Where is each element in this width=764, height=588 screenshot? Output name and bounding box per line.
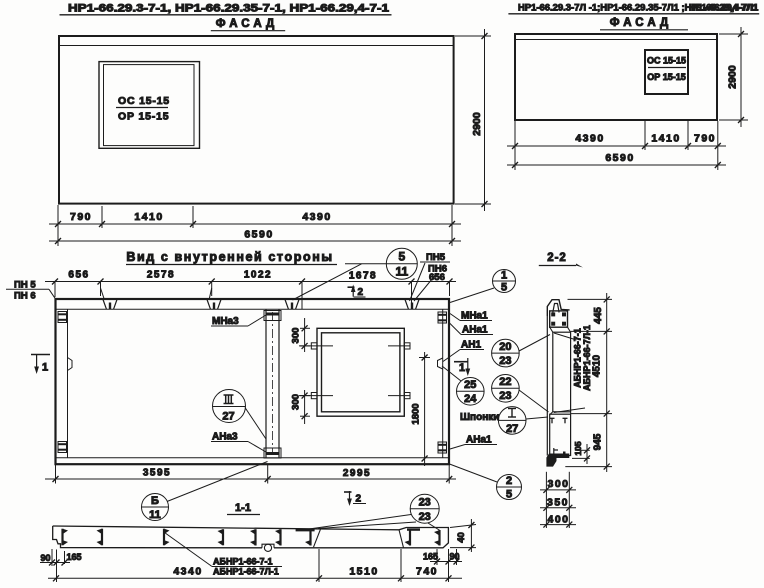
svg-text:2995: 2995 — [343, 468, 371, 479]
svg-text:105: 105 — [573, 441, 583, 455]
svg-text:11: 11 — [149, 509, 161, 521]
svg-text:5: 5 — [506, 489, 512, 501]
svg-text:ОС 15-15: ОС 15-15 — [118, 95, 170, 107]
svg-text:1022: 1022 — [244, 270, 272, 281]
svg-text:АН1: АН1 — [461, 340, 481, 351]
svg-text:4390: 4390 — [302, 211, 331, 223]
svg-text:ФАСАД: ФАСАД — [216, 18, 279, 30]
svg-text:23: 23 — [499, 390, 511, 402]
svg-text:АБНР1-66-7-1: АБНР1-66-7-1 — [213, 557, 273, 567]
svg-text:ФАСАД: ФАСАД — [610, 17, 673, 29]
svg-text:25: 25 — [464, 379, 476, 391]
svg-text:2-2: 2-2 — [547, 252, 567, 264]
svg-text:40: 40 — [456, 532, 467, 543]
svg-text:350: 350 — [547, 497, 569, 509]
svg-text:740: 740 — [416, 566, 438, 578]
svg-text:АБНР1-66-7Л-1: АБНР1-66-7Л-1 — [582, 325, 592, 391]
svg-text:1: 1 — [501, 270, 507, 282]
svg-text:20: 20 — [499, 341, 511, 353]
svg-text:2900: 2900 — [471, 112, 483, 136]
svg-text:165: 165 — [67, 552, 82, 562]
svg-text:АБНР1-66-7-1: АБНР1-66-7-1 — [573, 328, 583, 388]
svg-text:МНа3: МНа3 — [212, 316, 239, 327]
svg-text:1800: 1800 — [411, 403, 422, 424]
svg-text:6590: 6590 — [244, 229, 273, 241]
svg-text:ПН5: ПН5 — [426, 252, 446, 263]
svg-text:300: 300 — [291, 394, 302, 410]
svg-text:АНа1: АНа1 — [462, 325, 488, 336]
svg-text:2: 2 — [506, 475, 512, 487]
svg-text:1410: 1410 — [651, 133, 680, 145]
svg-text:ПН 6: ПН 6 — [14, 291, 36, 302]
svg-text:300: 300 — [291, 328, 302, 344]
svg-text:22: 22 — [499, 376, 511, 388]
svg-text:23: 23 — [499, 355, 511, 367]
svg-text:Б: Б — [151, 495, 159, 507]
svg-text:Шпонки: Шпонки — [460, 412, 499, 423]
svg-text:1678: 1678 — [349, 271, 377, 282]
svg-text:1-1: 1-1 — [235, 502, 251, 514]
svg-text:23: 23 — [419, 511, 431, 523]
svg-text:27: 27 — [506, 423, 518, 435]
svg-text:90: 90 — [450, 552, 460, 562]
svg-text:ОС 15-15: ОС 15-15 — [647, 56, 686, 66]
svg-text:НР1-66.29,4-7Л1: НР1-66.29,4-7Л1 — [689, 3, 758, 13]
svg-text:23: 23 — [419, 497, 431, 509]
svg-text:ОР 15-15: ОР 15-15 — [118, 111, 169, 123]
svg-text:5: 5 — [398, 250, 405, 264]
svg-text:АНа1: АНа1 — [466, 435, 492, 446]
svg-text:4510: 4510 — [592, 354, 603, 377]
svg-text:4340: 4340 — [173, 566, 202, 578]
svg-text:945: 945 — [593, 433, 604, 450]
svg-text:2: 2 — [358, 287, 364, 298]
svg-text:11: 11 — [395, 265, 408, 279]
svg-text:656: 656 — [68, 270, 89, 281]
svg-text:790: 790 — [694, 133, 716, 145]
svg-text:АНа3: АНа3 — [212, 432, 238, 443]
svg-text:300: 300 — [547, 478, 569, 490]
svg-text:Вид с внутренней стороны: Вид с внутренней стороны — [126, 250, 333, 264]
svg-text:ОР 15-15: ОР 15-15 — [647, 72, 686, 82]
svg-text:НР1-66.29.3-7-1, НР1-66.29.35-: НР1-66.29.3-7-1, НР1-66.29.35-7-1, НР1-6… — [68, 3, 389, 15]
svg-text:445: 445 — [593, 307, 604, 324]
svg-text:90: 90 — [41, 553, 51, 563]
svg-text:24: 24 — [464, 393, 477, 405]
svg-text:5: 5 — [501, 282, 507, 294]
svg-text:165: 165 — [423, 552, 438, 562]
svg-text:2578: 2578 — [147, 270, 175, 281]
svg-text:790: 790 — [70, 211, 92, 223]
svg-text:3595: 3595 — [143, 468, 171, 479]
svg-text:1: 1 — [42, 362, 48, 374]
svg-text:6590: 6590 — [605, 152, 634, 164]
svg-text:4390: 4390 — [575, 133, 604, 145]
svg-text:АБНР1-66-7Л-1: АБНР1-66-7Л-1 — [213, 567, 279, 577]
svg-text:1510: 1510 — [349, 566, 378, 578]
svg-text:2: 2 — [356, 494, 362, 505]
svg-text:1410: 1410 — [134, 211, 163, 223]
svg-text:400: 400 — [547, 513, 569, 525]
svg-text:МНа1: МНа1 — [461, 311, 488, 322]
svg-text:27: 27 — [222, 411, 234, 423]
svg-text:2900: 2900 — [727, 65, 739, 89]
svg-text:1: 1 — [459, 362, 465, 374]
